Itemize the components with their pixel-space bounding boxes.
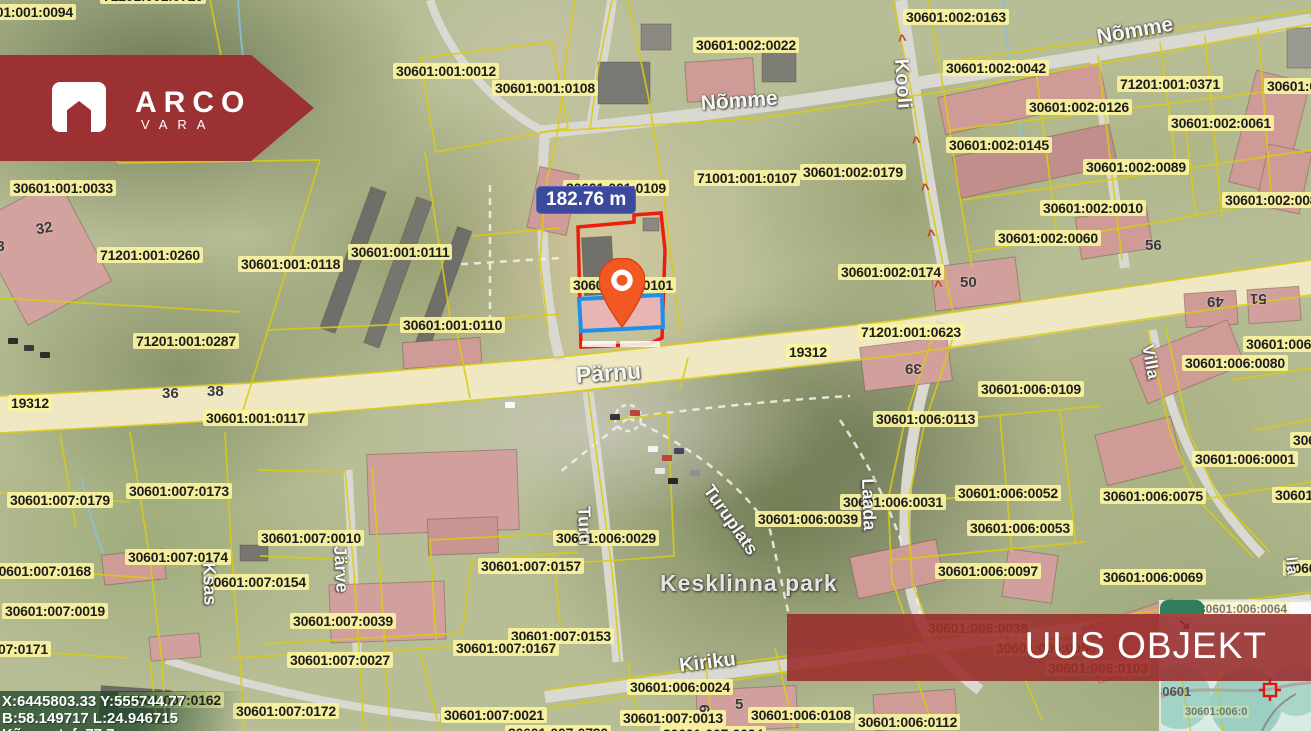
parcel-label: 30601:007:0168	[0, 563, 94, 579]
parcel-label: 30601:006:0053	[967, 520, 1073, 536]
arco-vara-logo-icon	[52, 82, 106, 132]
parcel-label: 30601:007:0173	[126, 483, 232, 499]
car	[505, 402, 515, 408]
parcel-label: 30601:001:0033	[10, 180, 116, 196]
parcel-label: 30601:001:0094	[0, 4, 76, 20]
parcel-label: 30601:006	[1272, 487, 1311, 503]
tiny-address-chip	[582, 341, 616, 347]
parcel-label: 30601:001:0117	[203, 410, 308, 426]
parcel-label: 30601:006:0069	[1100, 569, 1206, 585]
park-paths	[448, 185, 920, 620]
parcel-label: 30601:006:0	[1243, 336, 1311, 352]
house-number: 49	[1207, 293, 1224, 310]
parcel-label: 30601:007:0167	[453, 640, 559, 656]
measurement-result-label: 182.76 m	[536, 186, 636, 214]
parcel-label: 30601:0	[1264, 78, 1311, 94]
car	[668, 478, 678, 484]
parcel-label: 30601:001:0110	[400, 317, 505, 333]
parcel-label: 30601:002:0174	[838, 264, 944, 280]
coords-xy: X:6445803.33 Y:555744.77	[2, 694, 252, 711]
car	[674, 448, 684, 454]
house-number: 53	[0, 238, 5, 255]
house-number: 39	[905, 360, 922, 377]
house-number: 50	[960, 274, 977, 291]
car	[630, 410, 640, 416]
parcel-label: 19312	[8, 395, 52, 411]
parcel-label: 30601:007:0730	[505, 725, 611, 731]
tiny-address-chip	[620, 341, 660, 347]
parcel-label: 30601:001:0111	[348, 244, 452, 260]
car	[8, 338, 18, 344]
new-object-banner: UUS OBJEKT	[787, 614, 1311, 681]
parcel-label: 30601:002:0163	[903, 9, 1009, 25]
parcel-label: 30601:002:0179	[800, 164, 906, 180]
direction-arrow-icon: ^	[920, 181, 930, 199]
parcel-label: 30601:002:0010	[1040, 200, 1146, 216]
house-number: 32	[35, 219, 54, 239]
house-number: 5	[735, 696, 743, 713]
parcel-label: 30601:002:0126	[1026, 99, 1132, 115]
parcel-label: 71201:001:0287	[133, 333, 239, 349]
house-number: 6	[696, 704, 713, 712]
minimap-collapse-tab[interactable]	[1160, 600, 1204, 614]
parcel-label: 30601:006:0031	[840, 494, 946, 510]
brand-subtitle: VARA	[141, 117, 215, 132]
parcel-label: 30601:006:0001	[1192, 451, 1298, 467]
parcel-label: 30601:002:0022	[693, 37, 799, 53]
house-number: 38	[207, 383, 224, 400]
coords-height: Kõrgus t. f. 77.7	[2, 727, 252, 731]
parcel-label: 30601:006:0112	[855, 714, 960, 730]
minimap-parcel-label-faint: 30601:006:0	[1183, 706, 1249, 718]
location-pin-icon[interactable]	[599, 258, 645, 327]
parcel-label: 30601:006:0080	[1182, 355, 1288, 371]
brand-name: ARCO	[135, 86, 251, 120]
direction-arrow-icon: ^	[897, 32, 907, 50]
car	[662, 455, 672, 461]
house-number: 56	[1145, 237, 1162, 254]
parcel-label: 30601:006:0024	[627, 679, 733, 695]
direction-arrow-icon: ^	[926, 227, 936, 245]
parcel-label: 30601:007:0179	[7, 492, 113, 508]
new-object-banner-label: UUS OBJEKT	[1025, 625, 1267, 667]
street-name-label: Laada	[857, 478, 880, 531]
street-name-label: Turu	[573, 506, 595, 545]
parcel-label: 30601:007:0019	[2, 603, 108, 619]
map-viewer: 182.76 m 30601:006:0064 30601 30601:006:…	[0, 0, 1311, 731]
parcel-label: 71201:001:0371	[1117, 76, 1223, 92]
parcel-label: 30601:006:0109	[978, 381, 1084, 397]
parcel-label: 30601:0	[1290, 432, 1311, 448]
car	[655, 468, 665, 474]
minimap-map-label: 30601	[1159, 684, 1191, 699]
parcel-label: 30601:006:0075	[1100, 488, 1206, 504]
street-name-label: Ksas	[198, 562, 220, 606]
parcel-label: 30601:006:0108	[748, 707, 854, 723]
house-number: 36	[162, 385, 179, 402]
car	[690, 470, 700, 476]
parcel-label: 30601:007:0039	[290, 613, 396, 629]
parcel-label: 30601:002:0089	[1083, 159, 1189, 175]
parcel-label: 30601:006:0052	[955, 485, 1061, 501]
parcel-label: 71201:001:0623	[858, 324, 964, 340]
parcel-label: 30601:001:0118	[238, 256, 343, 272]
parcel-label: 30601:006:0097	[935, 563, 1041, 579]
parcel-label: 71201:001:0260	[97, 247, 203, 263]
parcel-label: 30601:002:0061	[1168, 115, 1274, 131]
parcel-label: 71201:001:0720	[100, 0, 206, 4]
parcel-label: 30601:002:0060	[995, 230, 1101, 246]
parcel-label: 30601:001:0012	[393, 63, 499, 79]
direction-arrow-icon: ^	[933, 278, 943, 296]
parcel-label: 19312	[786, 344, 830, 360]
parcel-label: 30601:007:0010	[258, 530, 364, 546]
car	[24, 345, 34, 351]
parcel-label: 30601:007:0157	[478, 558, 584, 574]
car	[610, 414, 620, 420]
parcel-label: 30601:006:0029	[553, 530, 659, 546]
car	[40, 352, 50, 358]
house-number: 51	[1250, 290, 1267, 307]
street-name-label: lla	[1281, 556, 1300, 575]
target-crosshair-icon	[1259, 679, 1281, 701]
arco-vara-banner: ARCO VARA	[0, 55, 314, 161]
park-name-label: Kesklinna park	[660, 570, 838, 597]
parcel-label: 30601:007:0021	[441, 707, 547, 723]
coords-bl: B:58.149717 L:24.946715	[2, 711, 252, 728]
parcel-label: 30601:001:0108	[492, 80, 598, 96]
parcel-label: 30601:002:0145	[946, 137, 1052, 153]
parcel-label: 30601:002:008	[1222, 192, 1311, 208]
car	[648, 446, 658, 452]
parcel-label: 30601:006:0039	[755, 511, 861, 527]
coordinates-readout: X:6445803.33 Y:555744.77 B:58.149717 L:2…	[0, 691, 252, 731]
parcel-label: 30601:006:0113	[873, 411, 978, 427]
parcel-label: 30601:007:0027	[287, 652, 393, 668]
direction-arrow-icon: ^	[911, 134, 921, 152]
parcel-label: 71001:001:0107	[694, 170, 800, 186]
house-arch-icon	[67, 101, 91, 132]
parcel-label: 30601:007:0171	[0, 641, 51, 657]
parcel-label: 30601:007:0024	[660, 726, 766, 731]
street-name-label: Järve	[329, 545, 352, 593]
parcel-label: 30601:002:0042	[943, 60, 1049, 76]
street-name-label: Pärnu	[575, 357, 642, 388]
street-name-label: Kooli	[889, 58, 915, 109]
